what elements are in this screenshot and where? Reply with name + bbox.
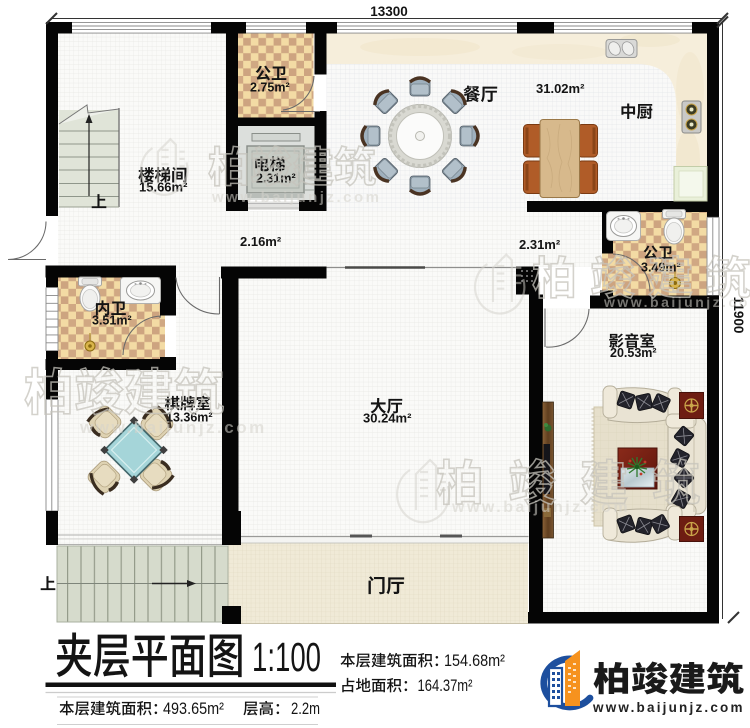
svg-text:164.37m²: 164.37m² — [418, 677, 473, 695]
svg-text:2.31m²: 2.31m² — [519, 237, 561, 252]
svg-text:3.51m²: 3.51m² — [92, 314, 132, 328]
svg-text:www.baijunjz.com: www.baijunjz.com — [79, 418, 267, 437]
svg-text:2.2m: 2.2m — [291, 700, 320, 718]
svg-text:31.02m²: 31.02m² — [536, 81, 585, 96]
svg-text:2.16m²: 2.16m² — [240, 234, 282, 249]
svg-text:2.75m²: 2.75m² — [250, 81, 290, 95]
svg-text:20.53m²: 20.53m² — [610, 346, 657, 360]
svg-text:30.24m²: 30.24m² — [363, 411, 412, 426]
svg-text:13300: 13300 — [370, 4, 408, 19]
svg-text:493.65m²: 493.65m² — [163, 700, 224, 718]
svg-text:www.baijunjz.com: www.baijunjz.com — [451, 499, 630, 516]
svg-text:www.baijunjz.com: www.baijunjz.com — [592, 700, 745, 715]
svg-text:www.baijunjz.com: www.baijunjz.com — [211, 189, 381, 206]
svg-text:1:100: 1:100 — [252, 634, 321, 680]
svg-text:www.baijunjz.com: www.baijunjz.com — [603, 294, 750, 310]
svg-text:154.68m²: 154.68m² — [444, 652, 505, 670]
